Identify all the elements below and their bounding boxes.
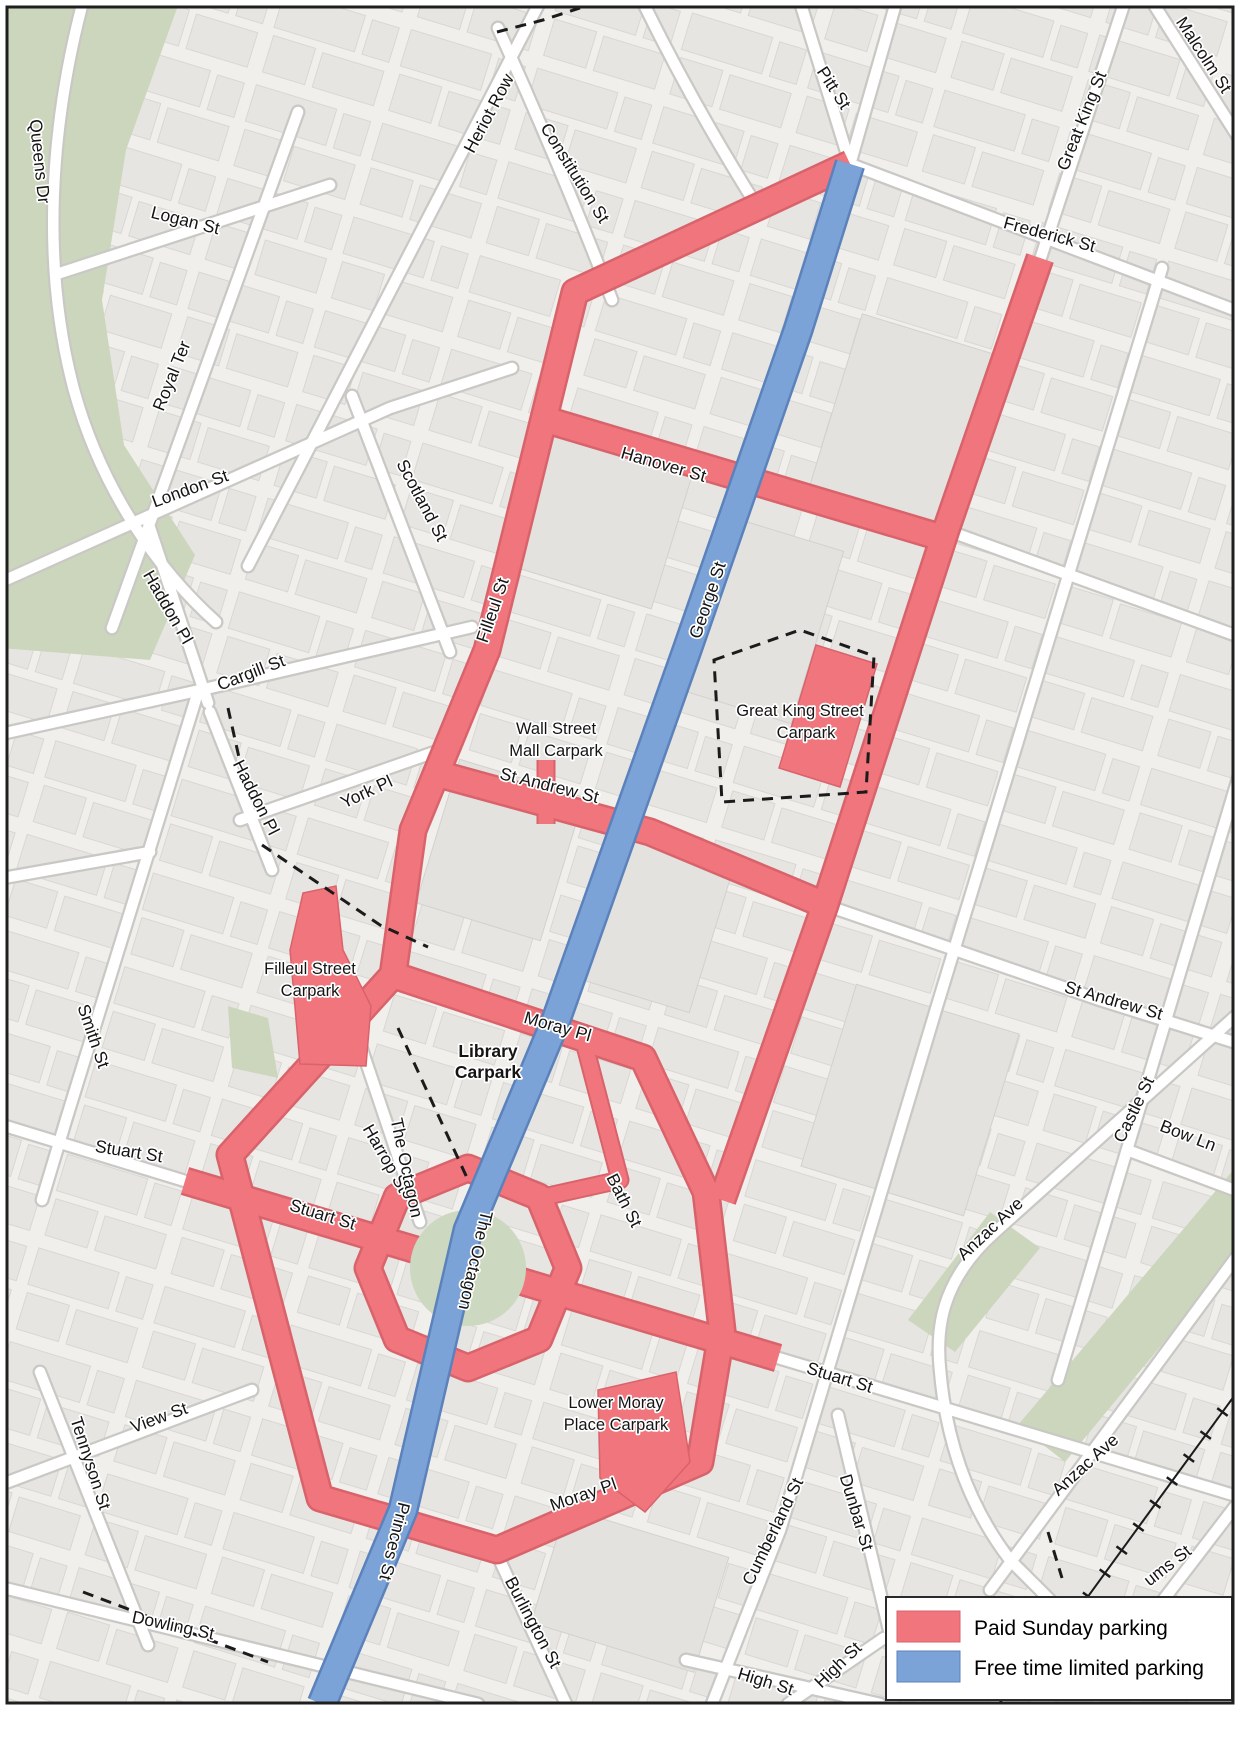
parking-map-page: Queens Dr Logan St Heriot Row Constituti… xyxy=(0,0,1240,1754)
legend-swatch-paid xyxy=(897,1611,960,1642)
legend-swatch-free xyxy=(897,1651,960,1682)
legend: Paid Sunday parking Free time limited pa… xyxy=(886,1597,1232,1700)
carpark-label-library-line2: Carpark xyxy=(455,1062,521,1082)
parking-map: Queens Dr Logan St Heriot Row Constituti… xyxy=(0,0,1240,1754)
map-canvas: Queens Dr Logan St Heriot Row Constituti… xyxy=(0,0,1240,1754)
carpark-label-lower-moray-line1: Lower Moray xyxy=(568,1394,664,1412)
legend-label-paid: Paid Sunday parking xyxy=(974,1617,1168,1640)
legend-label-free: Free time limited parking xyxy=(974,1657,1204,1680)
carpark-label-great-king-line2: Carpark xyxy=(777,724,836,742)
carpark-label-lower-moray-line2: Place Carpark xyxy=(564,1416,669,1434)
carpark-label-wall-street-line2: Mall Carpark xyxy=(509,742,603,760)
carpark-label-library-line1: Library xyxy=(458,1041,518,1061)
carpark-label-wall-street-line1: Wall Street xyxy=(516,720,596,738)
carpark-label-great-king-line1: Great King Street xyxy=(736,702,864,720)
carpark-label-filleul-line2: Carpark xyxy=(281,982,340,1000)
carpark-label-filleul-line1: Filleul Street xyxy=(264,960,356,978)
